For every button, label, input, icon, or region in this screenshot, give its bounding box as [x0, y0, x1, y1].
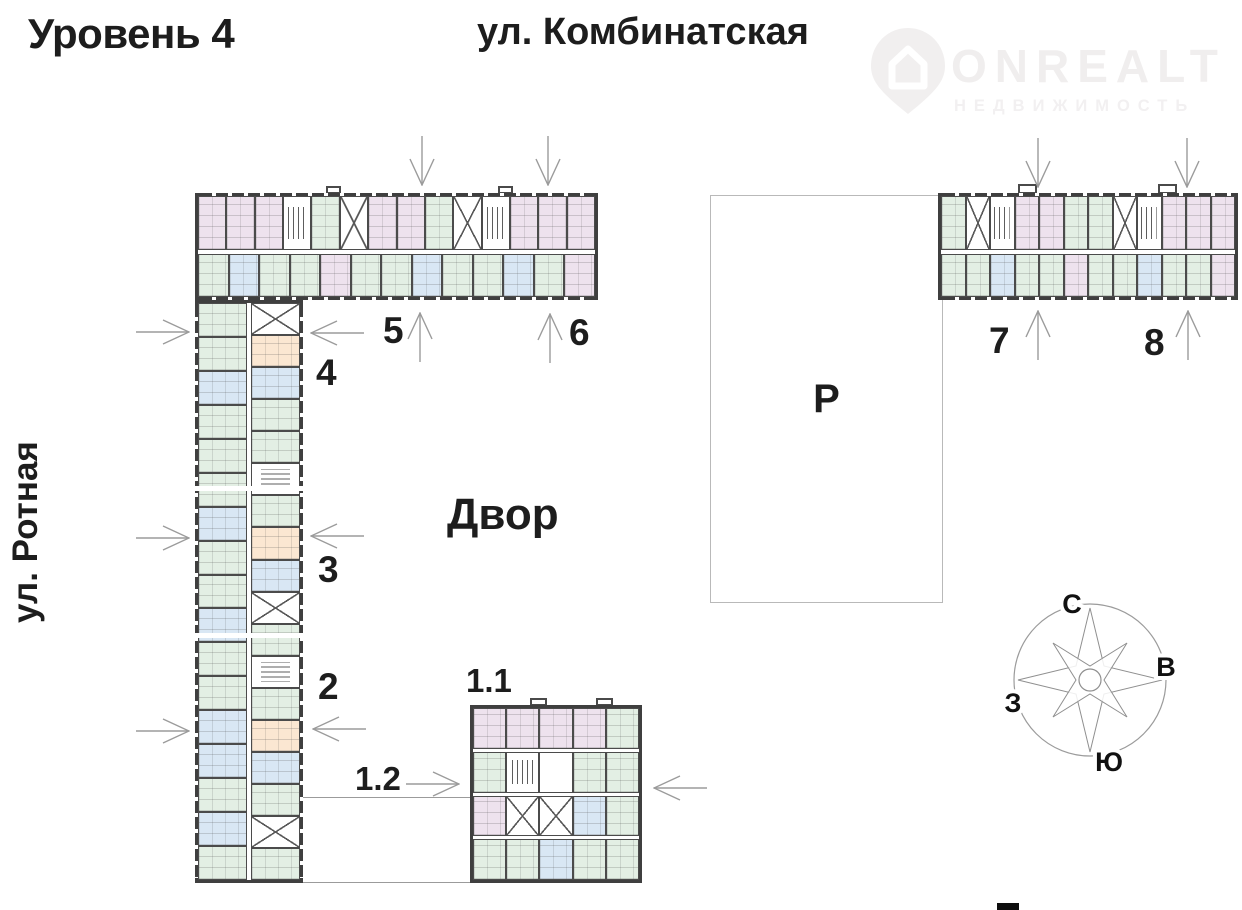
apartment-cell	[990, 254, 1015, 297]
entrance-arrow-down-icon	[409, 136, 435, 186]
apartment-cell	[251, 399, 300, 431]
apartment-cell	[198, 710, 247, 744]
section-label-1-1: 1.1	[466, 662, 512, 700]
apartment-cell	[198, 405, 247, 439]
apartment-cell	[1211, 254, 1236, 297]
apartment-row	[941, 196, 1235, 250]
section-label-5: 5	[383, 310, 404, 352]
apartment-cell	[567, 196, 595, 250]
apartment-cell	[198, 371, 247, 405]
apartment-cell	[251, 431, 300, 463]
elevator-shaft-icon	[1113, 196, 1138, 250]
brand-pin-icon	[871, 28, 945, 114]
entrance-arrow-down-icon	[535, 136, 561, 186]
apartment-cell	[1015, 196, 1040, 250]
section-label-3: 3	[318, 549, 339, 591]
apartment-cell	[473, 708, 506, 749]
building-joint	[195, 486, 303, 491]
elevator-shaft-icon	[539, 796, 572, 837]
building-section-1-1	[470, 705, 642, 883]
entrance-arrow-left-icon	[312, 716, 366, 742]
apartment-cell	[1039, 254, 1064, 297]
apartment-cell	[198, 541, 247, 575]
apartment-row	[198, 303, 247, 880]
apartment-cell	[1211, 196, 1236, 250]
apartment-row	[251, 303, 300, 880]
apartment-cell	[412, 254, 443, 297]
section-label-2: 2	[318, 666, 339, 708]
apartment-cell	[941, 196, 966, 250]
apartment-cell	[251, 752, 300, 784]
entrance-arrow-down-icon	[1174, 138, 1200, 188]
entrance-arrow-right-icon	[136, 319, 190, 345]
compass-east-label: В	[1156, 652, 1176, 682]
apartment-cell	[539, 839, 572, 880]
apartment-cell	[573, 839, 606, 880]
apartment-cell	[510, 196, 538, 250]
apartment-cell	[198, 196, 226, 250]
entrance-arrow-up-icon	[1025, 310, 1051, 360]
apartment-cell	[251, 495, 300, 527]
apartment-cell	[425, 196, 453, 250]
apartment-cell	[473, 839, 506, 880]
apartment-row	[473, 796, 639, 837]
apartment-cell	[506, 839, 539, 880]
apartment-cell	[1162, 196, 1187, 250]
apartment-cell	[1088, 254, 1113, 297]
apartment-row	[941, 254, 1235, 297]
apartment-cell	[473, 752, 506, 793]
apartment-cell	[229, 254, 260, 297]
apartment-cell	[564, 254, 595, 297]
elevator-shaft-icon	[251, 303, 300, 335]
apartment-cell	[290, 254, 321, 297]
parking-area: Р	[710, 195, 943, 603]
entrance-arrow-left-icon	[653, 775, 707, 801]
entrance-arrow-left-icon	[310, 523, 364, 549]
apartment-cell	[1039, 196, 1064, 250]
entrance-arrow-left-icon	[310, 320, 364, 346]
apartment-cell	[941, 254, 966, 297]
apartment-cell	[251, 624, 300, 656]
apartment-cell	[442, 254, 473, 297]
elevator-shaft-icon	[251, 592, 300, 624]
apartment-cell	[1015, 254, 1040, 297]
apartment-cell	[368, 196, 396, 250]
apartment-cell	[198, 575, 247, 609]
apartment-cell	[506, 708, 539, 749]
apartment-cell	[573, 752, 606, 793]
building-sections-5-6	[195, 193, 598, 300]
apartment-cell	[198, 254, 229, 297]
brand-name: ONREALT	[951, 40, 1220, 92]
courtyard-label: Двор	[447, 490, 559, 540]
floor-plan-page: ONREALT НЕДВИЖИМОСТЬ Уровень 4 ул. Комби…	[0, 0, 1242, 910]
apartment-cell	[539, 708, 572, 749]
entrance-arrow-up-icon	[1175, 310, 1201, 360]
apartment-cell	[503, 254, 534, 297]
apartment-cell	[473, 254, 504, 297]
stairs-icon	[1137, 196, 1162, 250]
apartment-cell	[573, 708, 606, 749]
apartment-cell	[1137, 254, 1162, 297]
parking-label: Р	[813, 377, 840, 422]
entrance-arrow-down-icon	[1025, 138, 1051, 188]
street-name-left: ул. Ротная	[4, 416, 48, 648]
apartment-row	[198, 196, 595, 250]
apartment-cell	[251, 367, 300, 399]
compass-west-label: З	[1005, 688, 1022, 718]
apartment-cell	[534, 254, 565, 297]
apartment-cell	[1064, 254, 1089, 297]
apartment-row	[198, 254, 595, 297]
apartment-cell	[573, 796, 606, 837]
apartment-cell	[198, 812, 247, 846]
core-void	[539, 752, 572, 793]
compass-rose: С В З Ю	[1000, 583, 1185, 781]
elevator-shaft-icon	[251, 816, 300, 848]
stairs-icon	[482, 196, 510, 250]
stairs-icon	[251, 656, 300, 688]
apartment-cell	[226, 196, 254, 250]
building-sections-7-8	[938, 193, 1238, 300]
apartment-cell	[1162, 254, 1187, 297]
elevator-shaft-icon	[340, 196, 368, 250]
cutoff-text-fragment	[997, 903, 1019, 910]
apartment-cell	[311, 196, 339, 250]
entrance-arrow-up-icon	[407, 312, 433, 362]
apartment-cell	[1088, 196, 1113, 250]
apartment-row	[473, 752, 639, 793]
apartment-cell	[606, 839, 639, 880]
compass-south-label: Ю	[1095, 747, 1123, 777]
apartment-cell	[198, 303, 247, 337]
apartment-cell	[1064, 196, 1089, 250]
watermark-logo: ONREALT НЕДВИЖИМОСТЬ	[848, 22, 1220, 118]
apartment-cell	[1113, 254, 1138, 297]
section-label-7: 7	[989, 320, 1010, 362]
section-label-1-2: 1.2	[355, 760, 401, 798]
stairs-icon	[506, 752, 539, 793]
apartment-cell	[606, 708, 639, 749]
apartment-cell	[251, 848, 300, 880]
building-joint	[195, 633, 303, 638]
apartment-cell	[351, 254, 382, 297]
apartment-cell	[1186, 196, 1211, 250]
apartment-cell	[255, 196, 283, 250]
apartment-row	[473, 708, 639, 749]
apartment-cell	[381, 254, 412, 297]
connector-line	[303, 882, 470, 883]
building-sections-2-3-4	[195, 300, 303, 883]
street-name-top: ул. Комбинатская	[477, 11, 809, 54]
apartment-cell	[198, 642, 247, 676]
apartment-cell	[473, 796, 506, 837]
apartment-cell	[397, 196, 425, 250]
apartment-cell	[198, 676, 247, 710]
apartment-cell	[198, 439, 247, 473]
section-label-8: 8	[1144, 322, 1165, 364]
elevator-shaft-icon	[966, 196, 991, 250]
apartment-cell	[198, 846, 247, 880]
apartment-cell	[251, 560, 300, 592]
apartment-cell	[966, 254, 991, 297]
entrance-arrow-right-icon	[136, 718, 190, 744]
stairs-icon	[990, 196, 1015, 250]
apartment-cell	[251, 527, 300, 559]
elevator-shaft-icon	[506, 796, 539, 837]
apartment-cell	[251, 720, 300, 752]
compass-north-label: С	[1062, 589, 1082, 619]
apartment-cell	[251, 335, 300, 367]
apartment-cell	[198, 337, 247, 371]
brand-tagline: НЕДВИЖИМОСТЬ	[954, 97, 1195, 115]
elevator-shaft-icon	[453, 196, 481, 250]
apartment-cell	[320, 254, 351, 297]
level-title: Уровень 4	[28, 10, 234, 58]
apartment-cell	[1186, 254, 1211, 297]
apartment-cell	[198, 507, 247, 541]
entrance-arrow-up-icon	[537, 313, 563, 363]
apartment-cell	[259, 254, 290, 297]
entrance-arrow-right-icon	[136, 525, 190, 551]
apartment-cell	[538, 196, 566, 250]
apartment-cell	[251, 688, 300, 720]
apartment-row	[473, 839, 639, 880]
apartment-cell	[198, 778, 247, 812]
apartment-cell	[606, 752, 639, 793]
apartment-cell	[198, 744, 247, 778]
stairs-icon	[283, 196, 311, 250]
entrance-arrow-right-icon	[406, 771, 460, 797]
apartment-cell	[606, 796, 639, 837]
apartment-cell	[251, 784, 300, 816]
section-label-4: 4	[316, 352, 337, 394]
section-label-6: 6	[569, 312, 590, 354]
